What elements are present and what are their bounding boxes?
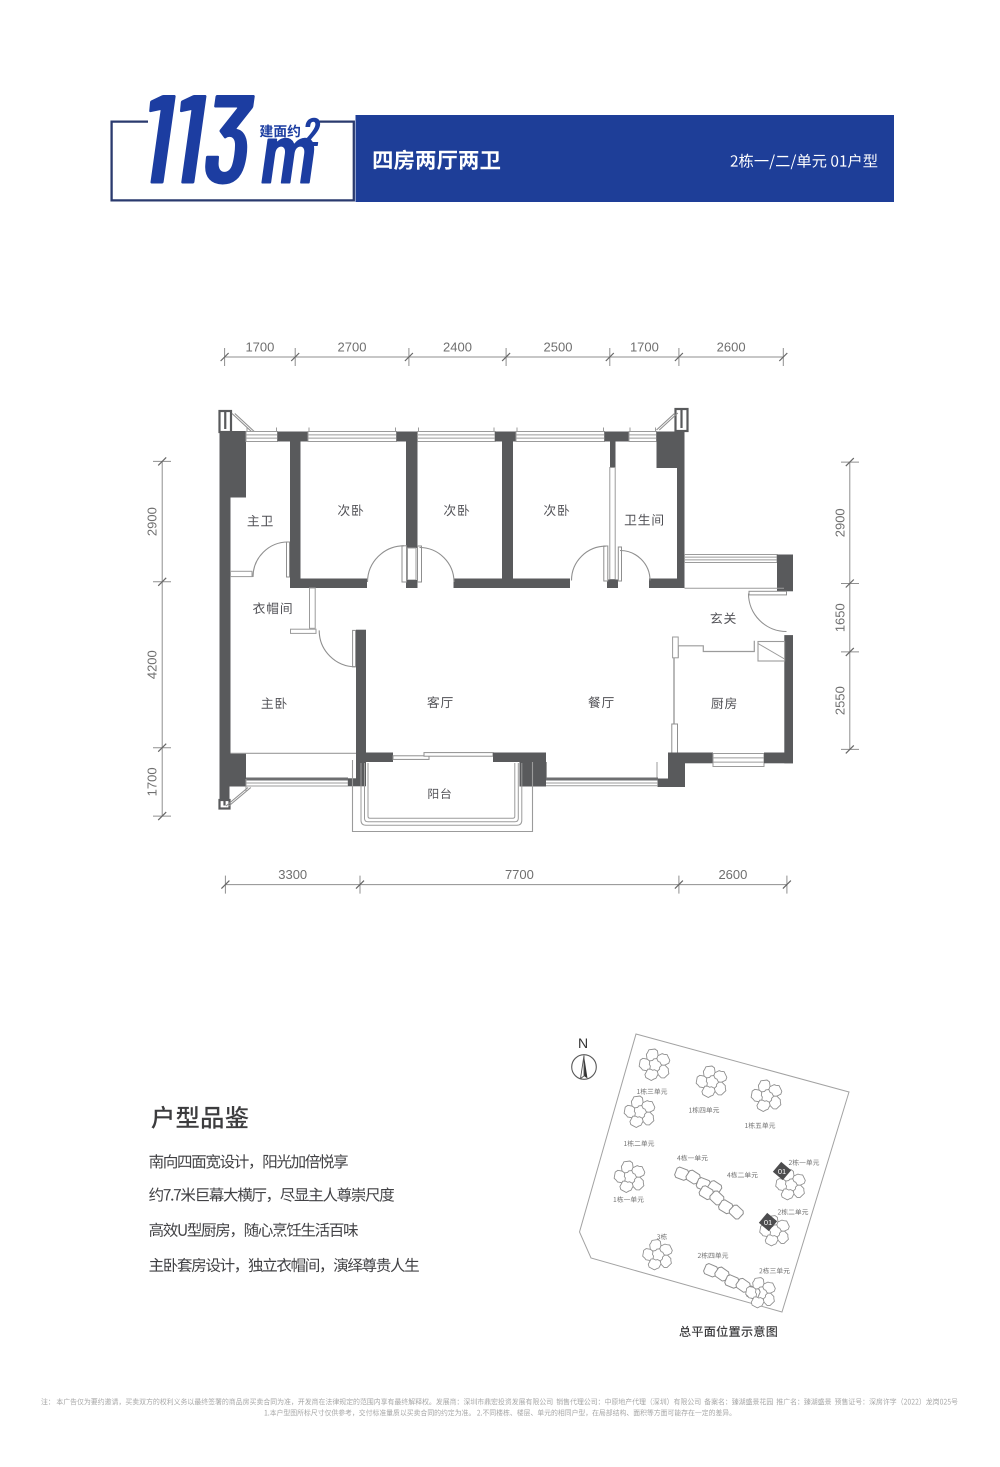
svg-text:2600: 2600 bbox=[717, 340, 746, 355]
svg-text:01: 01 bbox=[764, 1218, 772, 1227]
svg-text:1700: 1700 bbox=[145, 767, 160, 796]
svg-text:2400: 2400 bbox=[443, 340, 472, 355]
svg-text:1700: 1700 bbox=[245, 340, 274, 355]
svg-text:2900: 2900 bbox=[832, 508, 847, 537]
svg-text:1650: 1650 bbox=[832, 603, 847, 632]
svg-text:N: N bbox=[578, 1035, 588, 1051]
svg-text:2900: 2900 bbox=[145, 507, 160, 536]
svg-text:4200: 4200 bbox=[145, 650, 160, 679]
svg-text:7700: 7700 bbox=[505, 867, 534, 882]
svg-text:1700: 1700 bbox=[630, 340, 659, 355]
svg-text:2500: 2500 bbox=[544, 340, 573, 355]
svg-text:2550: 2550 bbox=[832, 686, 847, 715]
svg-text:2600: 2600 bbox=[718, 867, 747, 882]
svg-text:2700: 2700 bbox=[338, 340, 367, 355]
svg-text:01: 01 bbox=[778, 1167, 786, 1176]
svg-text:3300: 3300 bbox=[278, 867, 307, 882]
